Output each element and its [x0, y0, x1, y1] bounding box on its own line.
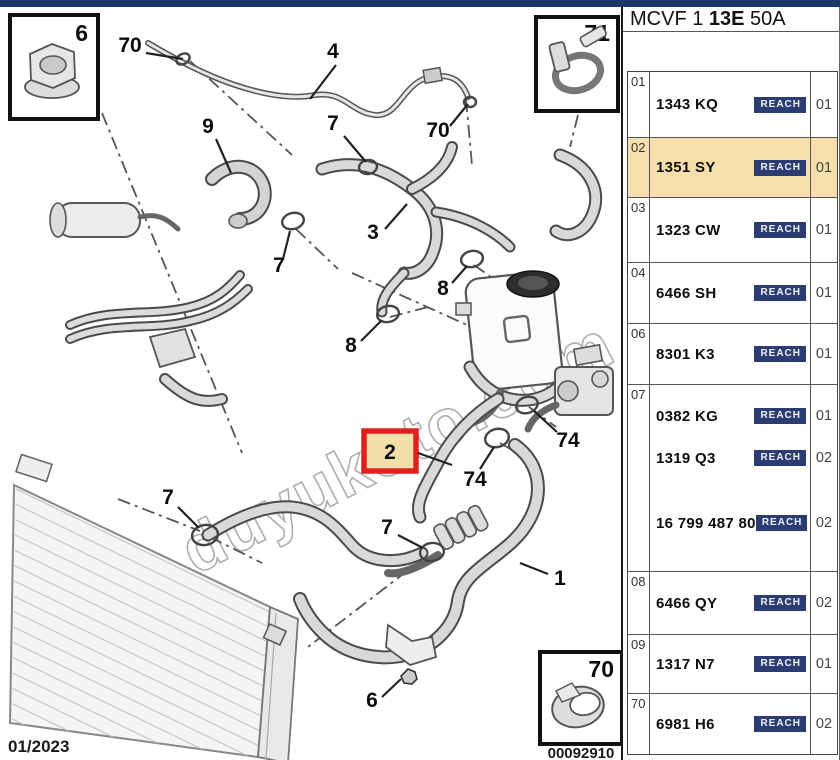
clamp-icon [460, 249, 485, 269]
top-right-hose-illustration [556, 155, 596, 235]
part-quantity: 01 [811, 157, 837, 179]
callout-8[interactable]: 8 [437, 266, 467, 300]
part-cell: 1351 SYREACH [650, 138, 810, 197]
reach-badge[interactable]: REACH [754, 222, 806, 238]
catalog-code: MCVF 1 13E 50A [623, 7, 839, 32]
inset-label-6: 6 [75, 20, 88, 46]
part-line: 1343 KQREACH [650, 94, 810, 116]
part-quantity: 01 [811, 653, 837, 675]
reach-badge[interactable]: REACH [756, 515, 808, 531]
svg-text:2: 2 [384, 441, 396, 464]
catalog-code-family: 13E [709, 8, 745, 30]
reach-badge[interactable]: REACH [754, 450, 806, 466]
ref-number: 03 [628, 198, 650, 262]
qty-cell: 010202 [810, 385, 837, 571]
reach-badge[interactable]: REACH [754, 656, 806, 672]
svg-text:1: 1 [554, 567, 566, 590]
part-line: 1319 Q3REACH [650, 447, 810, 469]
part-quantity: 02 [811, 447, 837, 469]
parts-row-07[interactable]: 070382 KGREACH1319 Q3REACH16 799 487 80R… [628, 385, 837, 572]
qty-cell: 01 [810, 72, 837, 137]
reach-badge[interactable]: REACH [754, 408, 806, 424]
ref-number: 06 [628, 324, 650, 384]
callout-9[interactable]: 9 [202, 115, 231, 173]
parts-row-03[interactable]: 031323 CWREACH01 [628, 198, 837, 263]
part-cell: 1317 N7REACH [650, 635, 810, 693]
top-accent-bar [0, 0, 840, 7]
callout-3[interactable]: 3 [367, 204, 407, 244]
catalog-code-prefix: MCVF 1 [630, 8, 709, 30]
part-line: 1351 SYREACH [650, 157, 810, 179]
reach-badge[interactable]: REACH [754, 346, 806, 362]
parts-panel: MCVF 1 13E 50A 011343 KQREACH01021351 SY… [621, 7, 840, 760]
svg-text:6: 6 [366, 689, 378, 712]
parts-row-02[interactable]: 021351 SYREACH01 [628, 138, 837, 198]
part-quantity: 02 [811, 512, 837, 534]
part-cell: 6981 H6REACH [650, 694, 810, 754]
bleed-pipe-illustration [148, 43, 468, 115]
callout-7[interactable]: 7 [273, 231, 290, 277]
part-number: 6466 QY [656, 595, 717, 612]
callout-70[interactable]: 70 [426, 104, 468, 142]
parts-row-01[interactable]: 011343 KQREACH01 [628, 72, 837, 138]
svg-text:4: 4 [327, 40, 339, 63]
reach-badge[interactable]: REACH [754, 97, 806, 113]
parts-row-06[interactable]: 068301 K3REACH01 [628, 324, 837, 385]
part-line: 8301 K3REACH [650, 343, 810, 365]
part-number: 6466 SH [656, 285, 716, 302]
reach-badge[interactable]: REACH [754, 716, 806, 732]
svg-text:8: 8 [437, 277, 449, 300]
parts-row-09[interactable]: 091317 N7REACH01 [628, 635, 837, 694]
parts-table: 011343 KQREACH01021351 SYREACH01031323 C… [627, 71, 838, 755]
part-number: 16 799 487 80 [656, 515, 756, 532]
svg-text:74: 74 [463, 468, 487, 491]
inset-box-sleeve: 70 [540, 652, 621, 744]
svg-text:3: 3 [367, 221, 379, 244]
svg-text:7: 7 [381, 516, 393, 539]
ref-number: 04 [628, 263, 650, 323]
part-number: 0382 KG [656, 408, 718, 425]
part-quantity: 01 [811, 343, 837, 365]
ref-number: 70 [628, 694, 650, 754]
qty-cell: 01 [810, 138, 837, 197]
qty-cell: 01 [810, 635, 837, 693]
part-line: 1323 CWREACH [650, 219, 810, 241]
svg-text:7: 7 [273, 254, 285, 277]
catalog-date: 01/2023 [8, 737, 69, 756]
qty-cell: 02 [810, 694, 837, 754]
inset-box-clamp: 71 [536, 17, 618, 111]
catalog-code-suffix: 50A [745, 8, 786, 30]
exploded-parts-drawing: duyukoto.com [0, 7, 621, 760]
ref-number: 09 [628, 635, 650, 693]
engine-assembly-illustration [50, 167, 265, 401]
part-line: 6466 SHREACH [650, 282, 810, 304]
inset-box-nut: 6 [10, 15, 98, 119]
parts-row-70[interactable]: 706981 H6REACH02 [628, 694, 837, 754]
part-number: 8301 K3 [656, 346, 715, 363]
part-number: 1351 SY [656, 159, 716, 176]
callout-1[interactable]: 1 [520, 563, 566, 590]
qty-cell: 02 [810, 572, 837, 634]
part-cell: 1323 CWREACH [650, 198, 810, 262]
svg-text:70: 70 [426, 119, 449, 142]
part-quantity: 01 [811, 405, 837, 427]
qty-cell: 01 [810, 198, 837, 262]
callout-8[interactable]: 8 [345, 320, 382, 357]
part-number: 1317 N7 [656, 656, 715, 673]
part-line: 6466 QYREACH [650, 592, 810, 614]
callout-6[interactable]: 6 [366, 679, 401, 712]
part-quantity: 01 [811, 94, 837, 116]
parts-catalog-page: duyukoto.com [0, 0, 840, 760]
ref-number: 01 [628, 72, 650, 137]
callout-74[interactable]: 74 [463, 447, 494, 491]
svg-text:7: 7 [327, 112, 339, 135]
part-line: 16 799 487 80REACH [650, 512, 810, 534]
part-number: 1319 Q3 [656, 450, 716, 467]
qty-cell: 01 [810, 324, 837, 384]
svg-text:9: 9 [202, 115, 214, 138]
ref-number: 02 [628, 138, 650, 197]
reach-badge[interactable]: REACH [754, 285, 806, 301]
clamp-icon [280, 210, 305, 231]
svg-text:8: 8 [345, 334, 357, 357]
drawing-number: 00092910 [548, 745, 615, 760]
part-number: 1343 KQ [656, 96, 718, 113]
diagram-panel: duyukoto.com [0, 7, 621, 760]
callout-4[interactable]: 4 [310, 40, 339, 99]
part-number: 6981 H6 [656, 716, 715, 733]
qty-cell: 01 [810, 263, 837, 323]
part-cell: 8301 K3REACH [650, 324, 810, 384]
ref-number: 08 [628, 572, 650, 634]
part-cell: 6466 QYREACH [650, 572, 810, 634]
ref-number: 07 [628, 385, 650, 571]
inset-label-70: 70 [588, 656, 614, 682]
svg-text:7: 7 [162, 486, 174, 509]
part-line: 6981 H6REACH [650, 713, 810, 735]
part-quantity: 01 [811, 219, 837, 241]
svg-text:70: 70 [118, 34, 141, 57]
part-number: 1323 CW [656, 222, 721, 239]
callout-74[interactable]: 74 [534, 411, 580, 452]
panel-spacer [623, 32, 839, 71]
parts-row-04[interactable]: 046466 SHREACH01 [628, 263, 837, 324]
callout-7[interactable]: 7 [327, 112, 366, 162]
part-cell: 1343 KQREACH [650, 72, 810, 137]
part-cell: 0382 KGREACH1319 Q3REACH16 799 487 80REA… [650, 385, 810, 571]
part-line: 0382 KGREACH [650, 405, 810, 427]
part-cell: 6466 SHREACH [650, 263, 810, 323]
reach-badge[interactable]: REACH [754, 160, 806, 176]
parts-row-08[interactable]: 086466 QYREACH02 [628, 572, 837, 635]
reach-badge[interactable]: REACH [754, 595, 806, 611]
svg-text:74: 74 [556, 429, 580, 452]
part-quantity: 02 [811, 592, 837, 614]
part-quantity: 01 [811, 282, 837, 304]
part-line: 1317 N7REACH [650, 653, 810, 675]
part-quantity: 02 [811, 713, 837, 735]
